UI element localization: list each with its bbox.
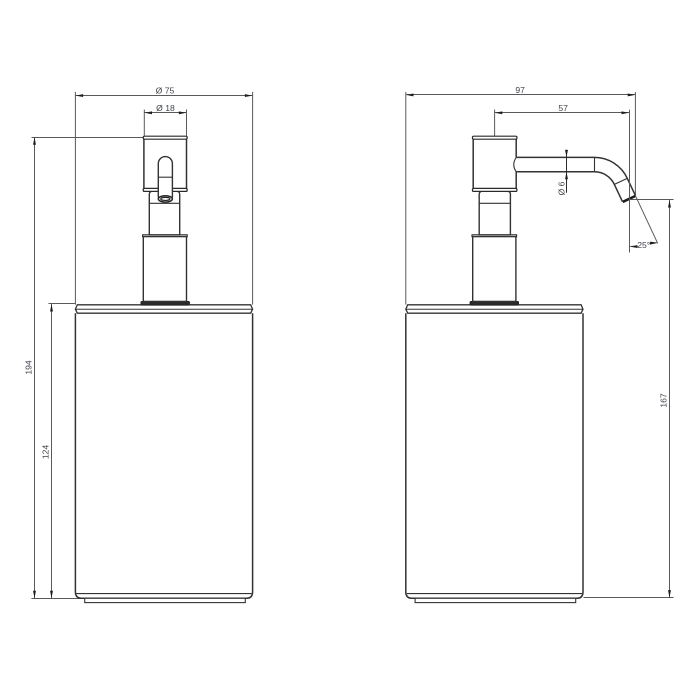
svg-text:194: 194 (24, 360, 34, 375)
svg-text:57: 57 (558, 103, 568, 113)
svg-text:Ø 6: Ø 6 (556, 181, 566, 195)
svg-text:Ø 18: Ø 18 (156, 103, 175, 113)
svg-text:Ø 75: Ø 75 (156, 86, 175, 96)
svg-text:167: 167 (658, 393, 668, 408)
svg-text:25°: 25° (637, 240, 650, 250)
svg-text:124: 124 (41, 445, 51, 460)
svg-text:97: 97 (515, 85, 525, 95)
